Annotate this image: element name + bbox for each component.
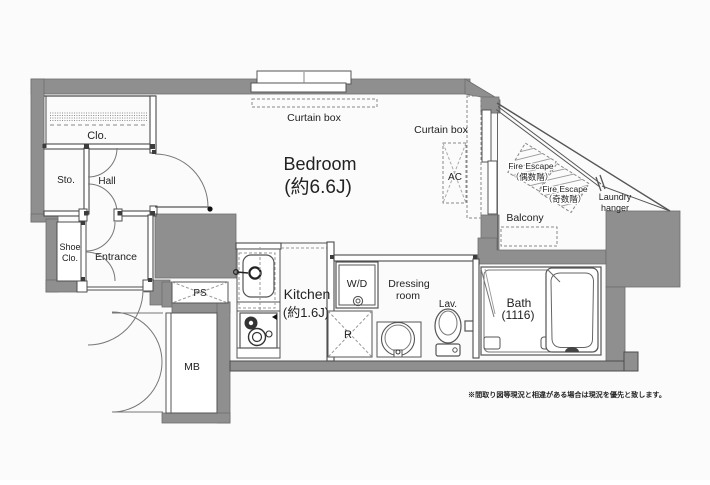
svg-text:Bedroom: Bedroom [283,154,356,174]
svg-text:AC: AC [448,172,462,183]
svg-text:room: room [396,290,420,302]
svg-text:Laundry: Laundry [599,192,632,202]
svg-text:MB: MB [184,361,200,373]
svg-text:Clo.: Clo. [62,253,78,263]
svg-text:Shoe: Shoe [59,242,80,252]
svg-text:(1116): (1116) [502,308,535,322]
svg-text:Curtain box: Curtain box [287,112,341,124]
svg-text:R: R [344,329,352,341]
svg-text:Curtain box: Curtain box [414,124,468,136]
svg-text:Dressing: Dressing [388,278,430,290]
svg-text:(約6.6J): (約6.6J) [284,176,352,198]
svg-text:hanger: hanger [601,203,629,213]
svg-text:Sto.: Sto. [57,175,75,186]
svg-text:（奇数階）: （奇数階） [544,194,587,204]
svg-text:Clo.: Clo. [87,130,107,142]
svg-text:Balcony: Balcony [506,212,544,224]
svg-text:W/D: W/D [347,278,368,290]
svg-text:Fire Escape: Fire Escape [542,184,588,194]
svg-text:Kitchen: Kitchen [284,286,331,302]
svg-text:※間取り図等現況と相違がある場合は現況を優先と致します。: ※間取り図等現況と相違がある場合は現況を優先と致します。 [468,390,666,399]
svg-text:Fire Escape: Fire Escape [508,161,554,171]
svg-text:Lav.: Lav. [439,299,457,310]
svg-text:Entrance: Entrance [95,251,137,263]
svg-text:PS: PS [193,288,207,299]
svg-text:(約1.6J): (約1.6J) [283,305,329,320]
svg-text:Hall: Hall [98,176,115,187]
svg-text:（偶数階）: （偶数階） [511,172,554,182]
